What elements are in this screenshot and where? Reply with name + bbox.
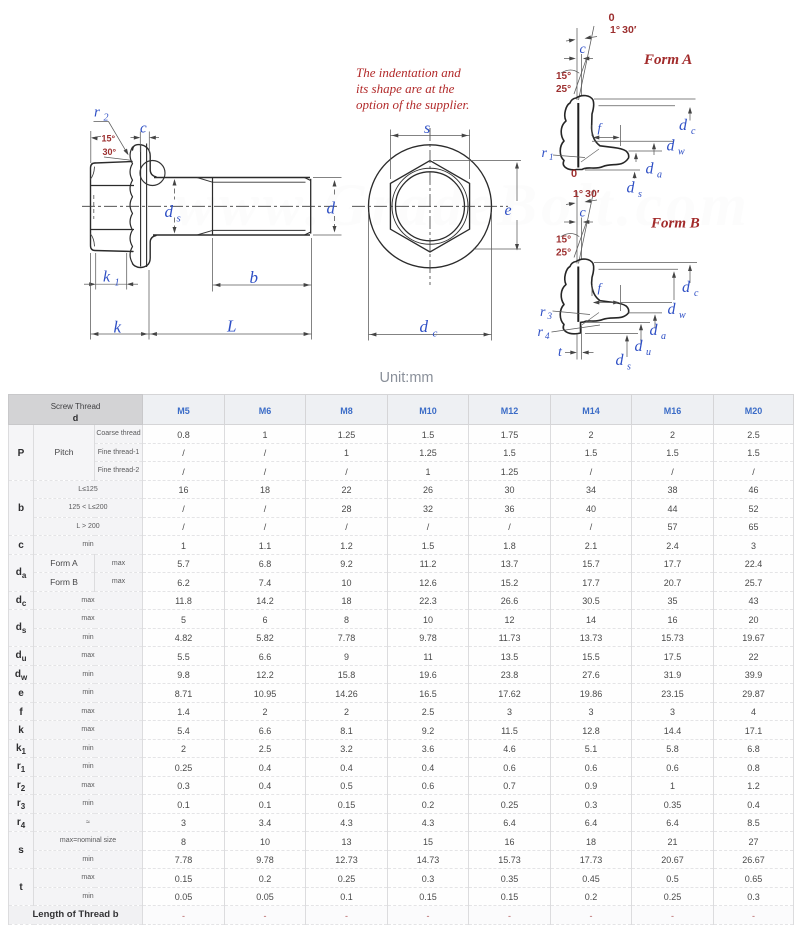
svg-text:d: d xyxy=(327,199,336,218)
svg-text:r: r xyxy=(94,105,100,121)
svg-text:k: k xyxy=(103,269,111,286)
svg-text:15°: 15° xyxy=(102,134,116,144)
svg-text:L: L xyxy=(226,317,236,336)
svg-text:c: c xyxy=(691,126,696,137)
svg-text:c: c xyxy=(433,328,438,340)
svg-text:25°: 25° xyxy=(556,248,571,259)
svg-text:3: 3 xyxy=(547,311,553,321)
svg-text:The indentation and: The indentation and xyxy=(356,65,461,80)
svg-text:15°: 15° xyxy=(556,235,571,246)
svg-text:k: k xyxy=(114,318,122,337)
svg-text:1° 30′: 1° 30′ xyxy=(573,188,600,200)
svg-text:s: s xyxy=(424,120,430,137)
svg-text:w: w xyxy=(678,147,685,158)
svg-text:d: d xyxy=(627,180,636,197)
svg-text:c: c xyxy=(694,288,699,299)
svg-text:0: 0 xyxy=(608,12,614,24)
svg-text:d: d xyxy=(635,338,644,355)
svg-text:Form B: Form B xyxy=(650,216,700,232)
svg-text:1: 1 xyxy=(115,278,120,289)
svg-text:d: d xyxy=(165,202,174,221)
svg-text:d: d xyxy=(667,138,676,155)
svg-text:1: 1 xyxy=(549,152,554,162)
svg-text:d: d xyxy=(682,279,691,296)
svg-text:d: d xyxy=(650,322,659,339)
svg-text:d: d xyxy=(420,317,429,336)
svg-text:c: c xyxy=(140,121,147,137)
svg-text:e: e xyxy=(505,202,512,219)
svg-text:u: u xyxy=(646,347,651,358)
svg-text:Form A: Form A xyxy=(643,52,692,68)
svg-text:its shape are at the: its shape are at the xyxy=(356,81,455,96)
svg-text:a: a xyxy=(657,170,662,181)
svg-text:f: f xyxy=(598,120,604,135)
svg-text:c: c xyxy=(580,206,587,221)
svg-text:0: 0 xyxy=(571,168,577,180)
svg-text:4: 4 xyxy=(545,331,550,341)
svg-text:d: d xyxy=(646,161,655,178)
svg-text:d: d xyxy=(616,352,625,369)
svg-text:30°: 30° xyxy=(103,147,117,157)
svg-text:15°: 15° xyxy=(556,71,571,82)
svg-text:d: d xyxy=(668,301,677,318)
svg-text:r: r xyxy=(542,146,548,161)
svg-text:w: w xyxy=(679,310,686,321)
svg-text:r: r xyxy=(538,325,544,340)
svg-text:f: f xyxy=(598,280,604,295)
svg-text:s: s xyxy=(177,213,181,225)
svg-text:option of the supplier.: option of the supplier. xyxy=(356,97,469,112)
svg-text:b: b xyxy=(250,268,259,287)
svg-text:s: s xyxy=(638,189,642,200)
svg-text:1° 30′: 1° 30′ xyxy=(610,24,637,36)
svg-text:a: a xyxy=(661,331,666,342)
svg-text:c: c xyxy=(580,42,587,57)
svg-text:t: t xyxy=(558,345,563,360)
svg-text:d: d xyxy=(679,117,688,134)
svg-text:25°: 25° xyxy=(556,84,571,95)
svg-text:r: r xyxy=(540,305,546,320)
